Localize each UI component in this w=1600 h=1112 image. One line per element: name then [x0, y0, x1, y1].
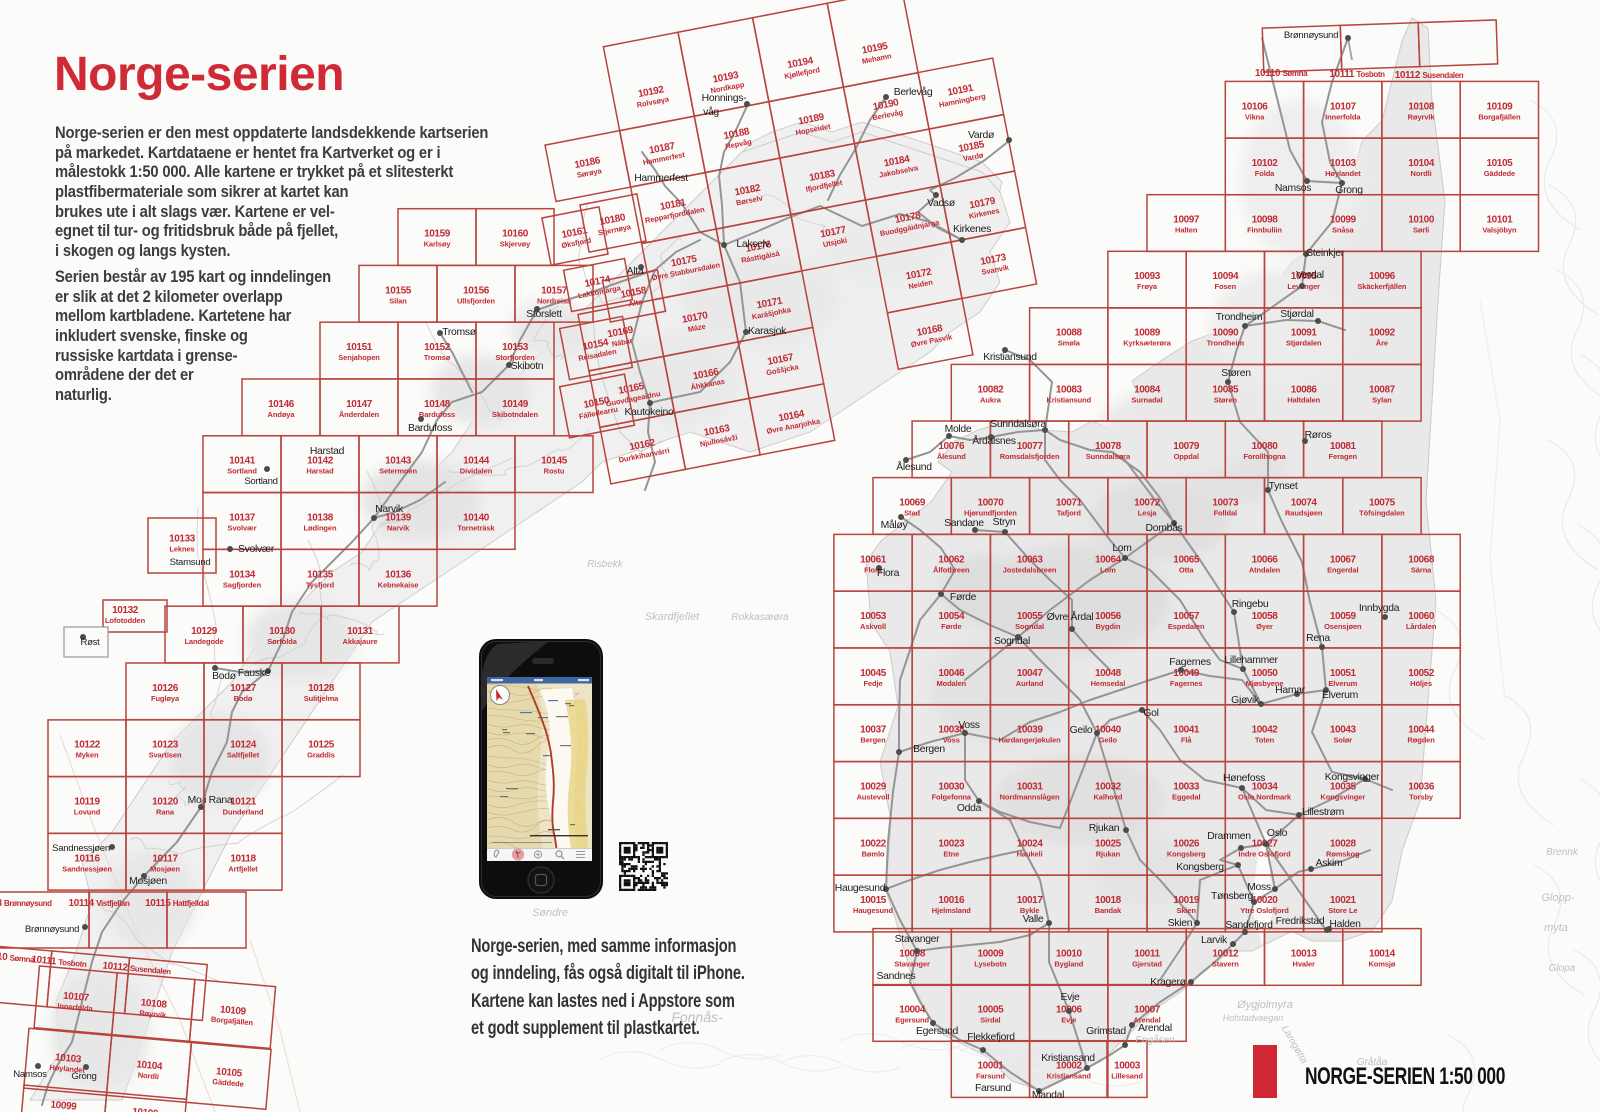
svg-text:Lom: Lom	[1100, 565, 1116, 574]
svg-text:Gjøvik: Gjøvik	[1231, 695, 1260, 706]
svg-text:våg: våg	[703, 106, 719, 118]
svg-text:10107: 10107	[1330, 101, 1357, 112]
svg-text:Førde: Førde	[950, 592, 977, 603]
svg-text:Skien: Skien	[1168, 918, 1193, 929]
svg-text:10134: 10134	[229, 569, 256, 580]
svg-text:Larvik: Larvik	[1201, 935, 1228, 946]
svg-text:10137: 10137	[229, 513, 256, 524]
svg-text:10094: 10094	[1212, 271, 1239, 282]
svg-text:10123: 10123	[152, 740, 179, 751]
svg-text:10099: 10099	[50, 1099, 78, 1112]
svg-text:10028: 10028	[1330, 838, 1357, 849]
svg-text:Fredrikstad: Fredrikstad	[1276, 916, 1325, 927]
svg-text:myta: myta	[1544, 922, 1568, 934]
svg-text:Stjørdalen: Stjørdalen	[1286, 339, 1322, 348]
svg-text:Alta: Alta	[627, 266, 644, 277]
svg-text:Romsdalsfjorden: Romsdalsfjorden	[1000, 452, 1060, 461]
svg-text:10129: 10129	[191, 626, 218, 637]
svg-text:Bygdin: Bygdin	[1095, 622, 1120, 631]
svg-text:10078: 10078	[1095, 441, 1122, 452]
svg-text:10069: 10069	[899, 498, 926, 509]
svg-text:10070: 10070	[977, 498, 1004, 509]
svg-text:Hammerfest: Hammerfest	[634, 173, 688, 184]
svg-text:10160: 10160	[502, 229, 529, 240]
svg-text:Dividalen: Dividalen	[460, 467, 493, 476]
svg-text:10083: 10083	[1056, 384, 1083, 395]
svg-text:Askim: Askim	[1316, 858, 1343, 869]
svg-text:10072: 10072	[1134, 498, 1161, 509]
svg-text:Gol: Gol	[1143, 708, 1158, 719]
svg-text:Atndalen: Atndalen	[1249, 565, 1281, 574]
svg-text:Rjukan: Rjukan	[1096, 849, 1121, 858]
svg-text:10104: 10104	[1408, 158, 1435, 169]
svg-text:10096: 10096	[1369, 271, 1396, 282]
svg-text:Surnadal: Surnadal	[1131, 395, 1162, 404]
svg-text:Lovund: Lovund	[74, 808, 101, 817]
svg-text:Stamsund: Stamsund	[170, 557, 211, 568]
svg-text:Stavern: Stavern	[1212, 960, 1239, 969]
svg-text:10010: 10010	[1056, 949, 1083, 960]
svg-text:10093: 10093	[1134, 271, 1161, 282]
svg-text:10105: 10105	[1486, 158, 1513, 169]
svg-text:Smøla: Smøla	[1058, 339, 1081, 348]
svg-text:Senjahopen: Senjahopen	[338, 353, 380, 362]
svg-text:Geilo: Geilo	[1099, 736, 1118, 745]
svg-text:Sandane: Sandane	[944, 518, 984, 529]
svg-text:Särna: Särna	[1411, 565, 1432, 574]
svg-text:Støren: Støren	[1214, 395, 1238, 404]
svg-text:Borgafjällen: Borgafjällen	[1478, 112, 1521, 121]
svg-text:Stavanger: Stavanger	[894, 960, 930, 969]
svg-text:Bodø: Bodø	[212, 671, 237, 682]
svg-text:Otta: Otta	[1179, 565, 1195, 574]
svg-text:10112 Susendalen: 10112 Susendalen	[1395, 70, 1464, 81]
svg-text:Valsjöbyn: Valsjöbyn	[1482, 226, 1517, 235]
svg-text:Folda: Folda	[1255, 169, 1275, 178]
svg-text:Sandefjord: Sandefjord	[1225, 920, 1273, 931]
svg-text:10110 Sømna: 10110 Sømna	[1255, 68, 1308, 79]
svg-text:Elverum: Elverum	[1328, 679, 1357, 688]
svg-text:10024: 10024	[1017, 838, 1044, 849]
svg-text:10086: 10086	[1291, 384, 1318, 395]
svg-text:Grong: Grong	[71, 1071, 96, 1082]
svg-text:Kragerø: Kragerø	[1150, 977, 1186, 988]
svg-text:10056: 10056	[1095, 611, 1122, 622]
svg-text:Glopa: Glopa	[1549, 963, 1576, 974]
svg-text:Graddis: Graddis	[307, 751, 335, 760]
svg-text:10098: 10098	[1252, 215, 1279, 226]
svg-text:Engerdal: Engerdal	[1327, 565, 1358, 574]
svg-text:Folldal: Folldal	[1214, 509, 1237, 518]
svg-text:10133: 10133	[169, 534, 196, 545]
svg-text:Vikna: Vikna	[1245, 112, 1265, 121]
svg-text:10101: 10101	[1486, 215, 1513, 226]
svg-text:Austevoll: Austevoll	[857, 793, 890, 802]
svg-text:Kongsberg: Kongsberg	[1176, 862, 1224, 873]
svg-text:Askvoll: Askvoll	[860, 622, 886, 631]
svg-text:NORGE-SERIEN 1:50 000: NORGE-SERIEN 1:50 000	[1305, 1063, 1505, 1090]
svg-text:Saltfjellet: Saltfjellet	[227, 751, 260, 760]
svg-text:10156: 10156	[463, 285, 490, 296]
svg-text:Berlevåg: Berlevåg	[894, 86, 933, 98]
svg-text:Røst: Røst	[80, 637, 100, 648]
svg-text:Toten: Toten	[1255, 736, 1275, 745]
svg-text:Karasjok: Karasjok	[748, 326, 787, 337]
svg-text:Mandal: Mandal	[1032, 1090, 1064, 1101]
svg-text:Brønnøysund: Brønnøysund	[25, 924, 79, 935]
svg-text:Evje: Evje	[1060, 992, 1080, 1003]
svg-text:Akkajaure: Akkajaure	[343, 637, 378, 646]
svg-text:Farsund: Farsund	[976, 1072, 1005, 1081]
svg-text:10082: 10082	[977, 384, 1004, 395]
svg-text:10049: 10049	[1173, 668, 1200, 679]
svg-text:10065: 10065	[1173, 554, 1200, 565]
svg-text:Folgefonna: Folgefonna	[932, 793, 972, 802]
svg-text:10077: 10077	[1017, 441, 1044, 452]
svg-text:Sortland: Sortland	[244, 476, 277, 487]
svg-text:Røyrvik: Røyrvik	[1408, 112, 1436, 121]
svg-text:10053: 10053	[860, 611, 887, 622]
svg-text:Silan: Silan	[389, 296, 407, 305]
svg-text:10066: 10066	[1252, 554, 1279, 565]
svg-text:10022: 10022	[860, 838, 887, 849]
svg-text:Töfsingdalen: Töfsingdalen	[1359, 509, 1405, 518]
svg-text:Höljes: Höljes	[1410, 679, 1432, 688]
svg-text:10050: 10050	[1252, 668, 1279, 679]
svg-text:Geilo: Geilo	[1070, 725, 1093, 736]
svg-text:10060: 10060	[1408, 611, 1435, 622]
svg-text:10106: 10106	[1242, 101, 1269, 112]
svg-text:Tysfjord: Tysfjord	[306, 580, 335, 589]
svg-text:10097: 10097	[1173, 215, 1200, 226]
svg-text:Sunndalsøra: Sunndalsøra	[990, 419, 1046, 430]
svg-text:Namsos: Namsos	[1275, 183, 1311, 194]
svg-text:Snåsa: Snåsa	[1332, 226, 1355, 235]
svg-text:Drammen: Drammen	[1207, 831, 1251, 842]
svg-text:10057: 10057	[1173, 611, 1200, 622]
svg-text:10047: 10047	[1017, 668, 1044, 679]
svg-text:10061: 10061	[860, 554, 887, 565]
svg-text:Etne: Etne	[943, 849, 959, 858]
svg-text:Bergen: Bergen	[860, 736, 886, 745]
svg-text:Lesja: Lesja	[1138, 509, 1158, 518]
svg-text:Steinkjer: Steinkjer	[1306, 248, 1345, 259]
svg-text:Sulitjelma: Sulitjelma	[304, 694, 339, 703]
svg-text:Måløy: Måløy	[881, 519, 909, 531]
svg-text:Leknes: Leknes	[169, 545, 194, 554]
svg-text:Sandnessjøen: Sandnessjøen	[52, 843, 110, 854]
svg-text:10149: 10149	[502, 399, 529, 410]
svg-text:10045: 10045	[860, 668, 887, 679]
svg-text:10115 Hattfjelldal: 10115 Hattfjelldal	[145, 898, 209, 909]
svg-text:10048: 10048	[1095, 668, 1122, 679]
svg-text:10026: 10026	[1173, 838, 1200, 849]
svg-text:Mosjøen: Mosjøen	[129, 876, 167, 887]
svg-text:Sogndal: Sogndal	[994, 636, 1030, 647]
svg-text:Fugløya: Fugløya	[151, 694, 180, 703]
svg-text:Ytre Oslofjord: Ytre Oslofjord	[1240, 906, 1289, 915]
svg-text:Kristiansand: Kristiansand	[1041, 1053, 1095, 1064]
svg-text:Mosjøen: Mosjøen	[150, 864, 180, 873]
svg-text:10036: 10036	[1408, 782, 1435, 793]
svg-text:Kongsberg: Kongsberg	[1167, 849, 1206, 858]
svg-text:Odda: Odda	[957, 803, 982, 814]
svg-text:Ringebu: Ringebu	[1232, 599, 1269, 610]
svg-text:Lakselv: Lakselv	[736, 239, 770, 250]
svg-text:10063: 10063	[1017, 554, 1044, 565]
svg-text:Grong: Grong	[1335, 185, 1363, 196]
svg-text:10087: 10087	[1369, 384, 1396, 395]
svg-text:10033: 10033	[1173, 782, 1200, 793]
svg-text:Støren: Støren	[1221, 368, 1251, 379]
svg-text:Haugesund: Haugesund	[853, 906, 893, 915]
svg-text:10131: 10131	[347, 626, 374, 637]
svg-text:Egersund: Egersund	[895, 1016, 929, 1025]
svg-text:Solør: Solør	[1333, 736, 1352, 745]
svg-text:Lofotodden: Lofotodden	[105, 616, 146, 625]
svg-text:10125: 10125	[308, 740, 335, 751]
svg-text:Sylan: Sylan	[1372, 395, 1392, 404]
svg-text:10116: 10116	[74, 853, 100, 864]
svg-text:10126: 10126	[152, 683, 179, 694]
svg-text:Nordli: Nordli	[137, 1070, 159, 1081]
svg-text:Kirkenes: Kirkenes	[953, 224, 991, 235]
svg-text:Frøya: Frøya	[1137, 282, 1158, 291]
svg-text:10062: 10062	[938, 554, 965, 565]
svg-text:Svartisen: Svartisen	[149, 751, 182, 760]
svg-text:10046: 10046	[938, 668, 965, 679]
svg-text:Hamar: Hamar	[1275, 685, 1306, 696]
svg-text:Kebnekaise: Kebnekaise	[378, 580, 419, 589]
svg-text:Bardufoss: Bardufoss	[408, 423, 452, 434]
svg-text:Sandnes: Sandnes	[877, 971, 916, 982]
svg-text:10032: 10032	[1095, 782, 1122, 793]
svg-text:Komsjø: Komsjø	[1368, 960, 1395, 969]
svg-text:Skjervøy: Skjervøy	[500, 240, 531, 249]
svg-text:10151: 10151	[346, 342, 373, 353]
svg-text:10144: 10144	[463, 456, 490, 467]
svg-text:Kyrksæterøra: Kyrksæterøra	[1123, 339, 1172, 348]
svg-text:10015: 10015	[860, 895, 887, 906]
svg-text:Modalen: Modalen	[936, 679, 966, 688]
svg-text:Stryn: Stryn	[993, 517, 1016, 528]
svg-text:Indre Oslofjord: Indre Oslofjord	[1238, 849, 1291, 858]
svg-text:Tønsberg: Tønsberg	[1211, 891, 1254, 902]
svg-text:Trondheim: Trondheim	[1207, 339, 1245, 348]
svg-text:10021: 10021	[1330, 895, 1357, 906]
svg-text:Innerfolda: Innerfolda	[1325, 112, 1361, 121]
svg-text:10155: 10155	[385, 285, 412, 296]
svg-text:Skardfjellet: Skardfjellet	[645, 611, 700, 623]
svg-text:10088: 10088	[1056, 328, 1083, 339]
svg-text:Egersund: Egersund	[916, 1026, 959, 1037]
svg-text:10001: 10001	[977, 1061, 1004, 1072]
svg-text:Lillestrøm: Lillestrøm	[1302, 807, 1344, 818]
svg-text:10051: 10051	[1330, 668, 1357, 679]
svg-text:Bygland: Bygland	[1054, 960, 1083, 969]
svg-text:10120: 10120	[152, 797, 179, 808]
svg-text:Lillehammer: Lillehammer	[1224, 655, 1278, 666]
svg-text:10013: 10013	[1291, 949, 1318, 960]
svg-text:Vadsø: Vadsø	[927, 198, 956, 209]
svg-text:Kristiansund: Kristiansund	[1046, 395, 1091, 404]
svg-text:10042: 10042	[1252, 725, 1279, 736]
svg-text:10132: 10132	[112, 605, 139, 616]
svg-text:Flora: Flora	[877, 568, 900, 579]
svg-text:Narvik: Narvik	[387, 524, 410, 533]
svg-text:10128: 10128	[308, 683, 335, 694]
svg-text:10076: 10076	[938, 441, 965, 452]
svg-text:Flå: Flå	[1181, 736, 1192, 745]
svg-text:Skibotndalen: Skibotndalen	[492, 410, 538, 419]
svg-text:10068: 10068	[1408, 554, 1435, 565]
svg-text:Sandnessjøen: Sandnessjøen	[62, 864, 112, 873]
svg-text:Lysebotn: Lysebotn	[974, 960, 1007, 969]
svg-text:Ullsfjorden: Ullsfjorden	[457, 296, 496, 305]
svg-text:Skien: Skien	[1176, 906, 1196, 915]
svg-text:Røros: Røros	[1305, 430, 1332, 441]
svg-text:10142: 10142	[307, 456, 334, 467]
svg-text:10099: 10099	[1330, 215, 1357, 226]
svg-text:10071: 10071	[1056, 498, 1083, 509]
svg-text:10080: 10080	[1252, 441, 1279, 452]
svg-text:10111 Tosbotn: 10111 Tosbotn	[1329, 69, 1385, 80]
svg-text:Hardangerjøkulen: Hardangerjøkulen	[999, 736, 1062, 745]
svg-text:Ånderdalen: Ånderdalen	[339, 410, 380, 419]
svg-text:Søndre: Søndre	[532, 907, 568, 919]
svg-text:Aurland: Aurland	[1016, 679, 1044, 688]
svg-text:Sørli: Sørli	[1413, 226, 1429, 235]
svg-text:Trondheim: Trondheim	[1216, 312, 1263, 323]
svg-text:Ålfotbreen: Ålfotbreen	[933, 565, 970, 574]
svg-text:Lillesand: Lillesand	[1111, 1072, 1143, 1081]
svg-text:Bodø: Bodø	[234, 694, 253, 703]
svg-text:Honnings-: Honnings-	[702, 93, 747, 104]
svg-text:10114 Vistfjellan: 10114 Vistfjellan	[69, 898, 130, 909]
svg-text:10073: 10073	[1212, 498, 1239, 509]
svg-text:10074: 10074	[1291, 498, 1318, 509]
svg-text:Hjelmsland: Hjelmsland	[932, 906, 972, 915]
svg-text:Landegode: Landegode	[184, 637, 223, 646]
svg-text:10055: 10055	[1017, 611, 1044, 622]
svg-text:10058: 10058	[1252, 611, 1279, 622]
svg-text:Verdal: Verdal	[1296, 270, 1324, 281]
svg-text:10138: 10138	[307, 513, 334, 524]
svg-text:Artfjellet: Artfjellet	[228, 864, 258, 873]
svg-text:10052: 10052	[1408, 668, 1435, 679]
svg-text:10081: 10081	[1330, 441, 1357, 452]
svg-text:10004: 10004	[899, 1005, 926, 1016]
svg-text:Vardø: Vardø	[968, 130, 995, 141]
svg-text:10143: 10143	[385, 456, 412, 467]
svg-text:10103: 10103	[1330, 158, 1357, 169]
svg-text:Dunderland: Dunderland	[223, 808, 264, 817]
svg-text:Innbygda: Innbygda	[1359, 603, 1400, 614]
svg-text:Storslett: Storslett	[526, 309, 562, 320]
svg-text:Årdalsnes: Årdalsnes	[972, 434, 1016, 447]
svg-text:Fagernes: Fagernes	[1169, 657, 1211, 668]
svg-text:Ålesund: Ålesund	[937, 452, 966, 461]
svg-text:Nordli: Nordli	[1411, 169, 1432, 178]
svg-text:10119: 10119	[74, 797, 100, 808]
svg-text:10018: 10018	[1095, 895, 1122, 906]
svg-text:10079: 10079	[1173, 441, 1200, 452]
svg-text:Lødingen: Lødingen	[304, 524, 337, 533]
svg-text:Sogndal: Sogndal	[1015, 622, 1044, 631]
svg-text:10091: 10091	[1291, 328, 1318, 339]
svg-text:10147: 10147	[346, 399, 373, 410]
svg-text:Nordreisa: Nordreisa	[537, 296, 572, 305]
svg-text:Sørfolda: Sørfolda	[267, 637, 298, 646]
svg-text:Glopp-: Glopp-	[1541, 892, 1574, 904]
svg-text:Bergen: Bergen	[913, 744, 945, 755]
svg-text:Bandak: Bandak	[1095, 906, 1122, 915]
svg-text:Bardufoss: Bardufoss	[419, 410, 455, 419]
svg-text:Fagernes: Fagernes	[1170, 679, 1203, 688]
svg-text:Svolvær: Svolvær	[238, 544, 275, 555]
svg-text:Harstad: Harstad	[306, 467, 334, 476]
svg-text:Kalhovd: Kalhovd	[1093, 793, 1122, 802]
svg-text:10090: 10090	[1212, 328, 1239, 339]
svg-text:Sunndalsøra: Sunndalsøra	[1086, 452, 1131, 461]
svg-text:Engåsen: Engåsen	[1135, 1034, 1175, 1046]
svg-text:Forollhogna: Forollhogna	[1243, 452, 1286, 461]
svg-text:Rømskog: Rømskog	[1326, 849, 1360, 858]
svg-text:10030: 10030	[938, 782, 965, 793]
svg-text:Røgden: Røgden	[1407, 736, 1435, 745]
svg-text:10092: 10092	[1369, 328, 1396, 339]
svg-text:Svolvær: Svolvær	[228, 524, 257, 533]
svg-text:Rokkasæøra: Rokkasæøra	[731, 612, 789, 623]
svg-text:10017: 10017	[1017, 895, 1044, 906]
svg-text:Haukeli: Haukeli	[1017, 849, 1043, 858]
svg-text:Valle: Valle	[1023, 914, 1044, 925]
svg-text:10113 Brønnøysund: 10113 Brønnøysund	[0, 898, 52, 909]
svg-text:Halten: Halten	[1175, 226, 1198, 235]
svg-text:Tynset: Tynset	[1269, 481, 1298, 492]
svg-text:10005: 10005	[977, 1005, 1004, 1016]
svg-text:Nordmannslågen: Nordmannslågen	[1000, 793, 1060, 802]
svg-text:Tafjord: Tafjord	[1057, 509, 1082, 518]
svg-text:Voss: Voss	[943, 736, 960, 745]
svg-text:10007: 10007	[1134, 1005, 1161, 1016]
svg-text:Skibotn: Skibotn	[511, 361, 544, 372]
svg-text:Åre: Åre	[1376, 339, 1388, 348]
svg-text:Rena: Rena	[1306, 633, 1330, 644]
svg-text:10122: 10122	[74, 740, 101, 751]
svg-text:Stad: Stad	[904, 509, 920, 518]
svg-text:Hønefoss: Hønefoss	[1223, 773, 1265, 784]
svg-text:Oslo: Oslo	[1267, 828, 1288, 839]
svg-text:10118: 10118	[230, 853, 256, 864]
svg-text:10011: 10011	[1134, 949, 1160, 960]
svg-text:10064: 10064	[1095, 554, 1122, 565]
svg-text:Mo i Rana: Mo i Rana	[188, 795, 233, 806]
svg-text:10153: 10153	[502, 342, 529, 353]
svg-text:Setermoen: Setermoen	[379, 467, 417, 476]
svg-text:Farsund: Farsund	[975, 1083, 1012, 1094]
svg-text:Finnbuliin: Finnbuliin	[1247, 226, 1282, 235]
svg-text:Sirdal: Sirdal	[980, 1016, 1000, 1025]
svg-text:10127: 10127	[230, 683, 257, 694]
svg-text:10041: 10041	[1173, 725, 1200, 736]
svg-text:10089: 10089	[1134, 328, 1161, 339]
svg-text:10044: 10044	[1408, 725, 1435, 736]
svg-text:Oslo Nordmark: Oslo Nordmark	[1238, 793, 1292, 802]
svg-text:Brennk: Brennk	[1546, 847, 1579, 858]
svg-text:10121: 10121	[230, 797, 257, 808]
svg-text:Haltdalen: Haltdalen	[1287, 395, 1320, 404]
